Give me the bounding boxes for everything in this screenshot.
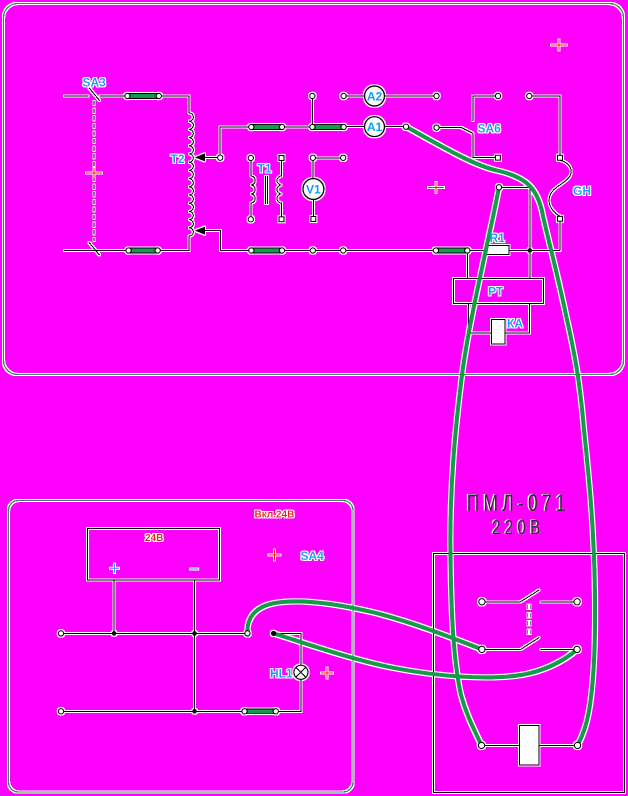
svg-text:R1: R1 [490, 231, 506, 245]
svg-text:GH: GH [573, 184, 591, 198]
svg-text:T2: T2 [171, 152, 185, 166]
svg-text:T1: T1 [258, 162, 272, 176]
svg-text:24В: 24В [145, 533, 163, 544]
svg-text:V1: V1 [306, 182, 321, 196]
svg-text:SA6: SA6 [478, 122, 502, 136]
svg-text:РТ: РТ [488, 285, 504, 299]
svg-text:ПМЛ-071: ПМЛ-071 [467, 490, 570, 516]
svg-text:HL1: HL1 [270, 666, 293, 680]
svg-text:220В: 220В [492, 516, 544, 539]
svg-text:A1: A1 [367, 120, 383, 134]
svg-text:SA3: SA3 [83, 76, 107, 90]
svg-text:Вкл.24В: Вкл.24В [255, 510, 295, 521]
svg-text:A2: A2 [367, 89, 383, 103]
svg-text:SA4: SA4 [301, 549, 325, 563]
svg-text:КА: КА [507, 317, 523, 331]
